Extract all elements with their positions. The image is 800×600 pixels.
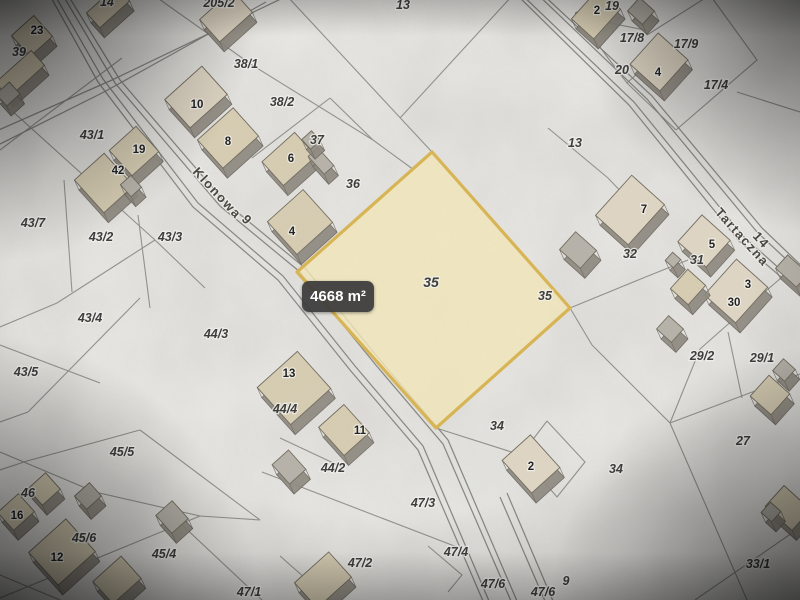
map-canvas[interactable]: Klonowa9Tartaczna1414205/213193938/138/2…	[0, 0, 800, 600]
photo-grain	[0, 0, 800, 600]
cadastral-map-photo: Klonowa9Tartaczna1414205/213193938/138/2…	[0, 0, 800, 600]
area-badge: 4668 m²	[302, 281, 374, 312]
